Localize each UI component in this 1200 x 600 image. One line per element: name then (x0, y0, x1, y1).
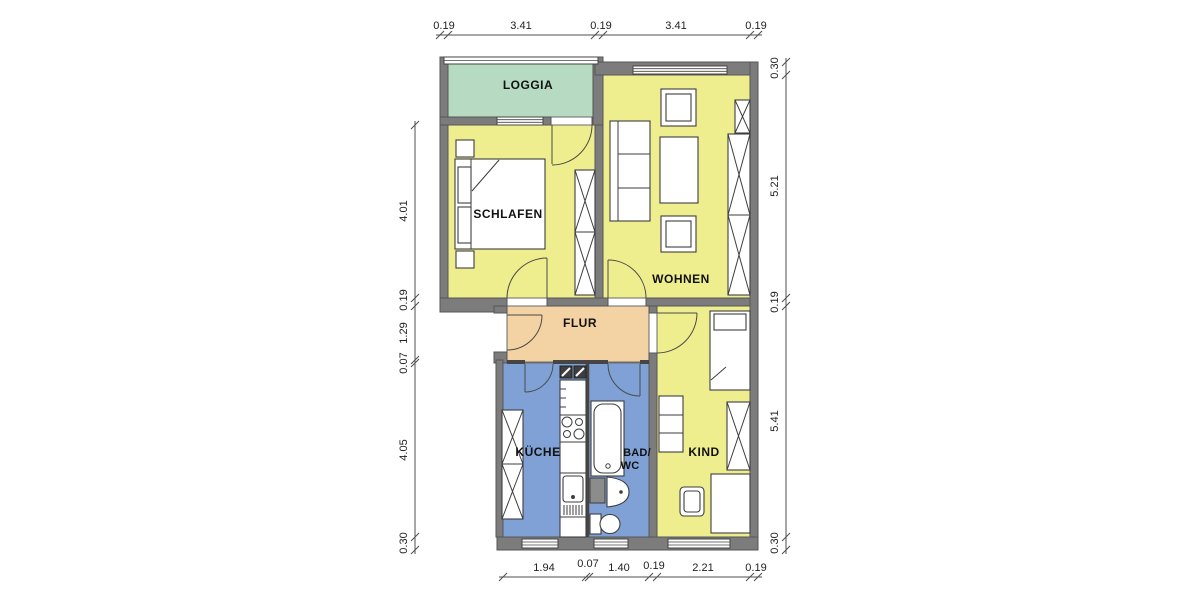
dim-left-3: 0.07 (398, 352, 410, 373)
label-wc: WC (621, 460, 640, 472)
nightstand-1 (456, 140, 474, 157)
pillow-1 (458, 167, 471, 203)
wardrobe-wohnen (728, 134, 750, 295)
dim-left-4: 4.05 (398, 439, 410, 460)
nightstand-2 (456, 251, 474, 268)
dim-left-0: 4.01 (398, 200, 410, 221)
window-kind-bottom (668, 539, 730, 548)
washing-machine (590, 478, 605, 503)
dim-bottom-0: 1.94 (533, 562, 554, 574)
armchair-bottom (661, 216, 696, 252)
dim-right-0: 0.30 (769, 57, 781, 78)
label-flur: FLUR (563, 316, 597, 330)
bathtub (591, 401, 624, 476)
dimension-chain-right: 0.30 5.21 0.19 5.41 0.30 (769, 57, 790, 554)
wardrobe-schlafen (575, 170, 595, 295)
coffee-table (660, 137, 698, 203)
label-wohnen: WOHNEN (652, 272, 710, 286)
dim-right-1: 5.21 (769, 175, 781, 196)
window-wohnen-top (633, 66, 727, 74)
wall-flur-bad (640, 360, 649, 364)
toilet (590, 514, 620, 534)
window-bad-bottom (594, 539, 628, 548)
wall-upper-bottom-right (646, 298, 750, 306)
armchair-top (661, 89, 696, 126)
window-loggia-schlafen (497, 117, 543, 125)
dim-bottom-4: 2.21 (692, 562, 713, 574)
dim-right-4: 0.30 (769, 532, 781, 553)
dim-top-1: 3.41 (510, 20, 531, 32)
wall-flur-kueche-b (553, 360, 608, 364)
label-bad: BAD/ (623, 447, 651, 459)
sofa (610, 121, 650, 221)
label-schlafen: SCHLAFEN (473, 207, 542, 221)
wall-kind-left-top (649, 306, 657, 313)
dim-bottom-5: 0.19 (745, 562, 766, 574)
dim-right-2: 0.19 (769, 291, 781, 312)
room-flur (507, 306, 649, 362)
kind-wardrobe (727, 402, 750, 470)
desk (711, 474, 750, 533)
kind-shelf (659, 396, 683, 452)
kind-bed (710, 311, 750, 390)
wall-schlafen-wohnen (595, 125, 603, 298)
pillow-2 (458, 207, 471, 243)
label-kueche: KÜCHE (515, 444, 560, 459)
cabinet-small-wohnen (735, 100, 750, 133)
dimension-chain-bottom: 1.94 0.07 1.40 0.19 2.21 0.19 (499, 558, 767, 581)
label-kind: KIND (688, 445, 719, 459)
wall-outer-right (750, 62, 758, 550)
window-kueche-bottom (522, 539, 558, 548)
wall-bad-kind (649, 353, 657, 537)
dim-left-5: 0.30 (398, 532, 410, 553)
dim-left-2: 1.29 (398, 322, 410, 343)
dim-bottom-1: 0.07 (577, 558, 598, 570)
dimension-chain-left: 4.01 0.19 1.29 0.07 4.05 0.30 (398, 121, 419, 554)
wall-flur-kueche-a (507, 360, 525, 364)
dim-right-3: 5.41 (769, 410, 781, 431)
wall-flur-left-top (494, 306, 507, 313)
dim-left-1: 0.19 (398, 289, 410, 310)
dim-bottom-3: 0.19 (643, 560, 664, 572)
pantry-cabinet (502, 410, 523, 519)
floor-plan: LOGGIA SCHLAFEN WOHNEN FLUR KÜCHE BAD/ W… (0, 0, 1200, 600)
wall-outer-left (440, 57, 448, 306)
chair (680, 487, 704, 516)
dimension-chain-top: 0.19 3.41 0.19 3.41 0.19 (433, 20, 766, 39)
wall-upper-bottom-mid (547, 298, 608, 306)
dim-top-2: 0.19 (590, 20, 611, 32)
dim-top-0: 0.19 (433, 20, 454, 32)
kitchen-counter (560, 380, 586, 537)
dim-top-3: 3.41 (665, 20, 686, 32)
dim-bottom-2: 1.40 (608, 562, 629, 574)
label-loggia: LOGGIA (503, 78, 553, 92)
dim-top-4: 0.19 (745, 20, 766, 32)
